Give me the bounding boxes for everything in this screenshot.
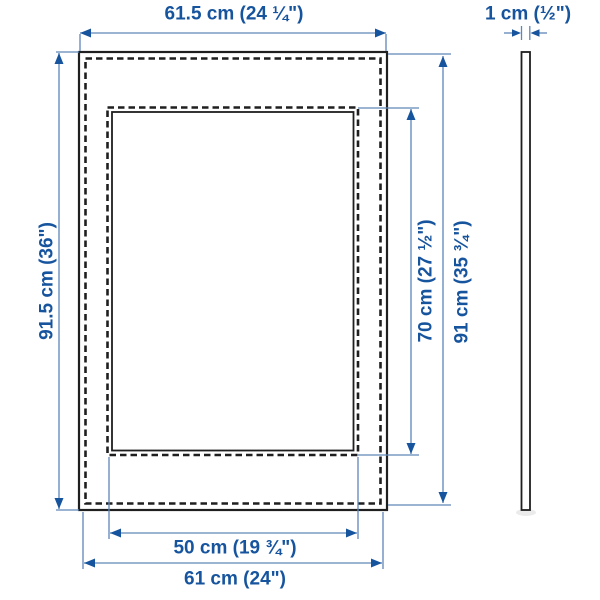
label-outer-width: 61.5 cm (24 ¼") (165, 5, 304, 24)
dim-thickness (504, 26, 547, 40)
arrow-right-icon (346, 529, 357, 538)
label-right-height: 91 cm (35 ¾") (453, 220, 472, 343)
arrow-down-icon (407, 443, 416, 454)
label-opening-height: 70 cm (27 ½") (417, 219, 436, 342)
side-profile-view (516, 52, 536, 516)
label-thickness: 1 cm (½") (485, 5, 571, 24)
arrow-right-icon (375, 29, 386, 38)
product-dimension-diagram: 61.5 cm (24 ¼") 1 cm (½") 91.5 cm (36") … (0, 0, 600, 600)
arrow-left-icon (84, 559, 95, 568)
arrow-right-icon (371, 559, 382, 568)
label-outer-height: 91.5 cm (36") (38, 222, 57, 340)
arrow-left-icon (531, 29, 540, 36)
arrow-down-icon (439, 492, 448, 503)
arrow-left-icon (110, 529, 121, 538)
front-view-frame (79, 52, 387, 510)
dim-outer-height (55, 52, 80, 510)
frame-opening-edge (112, 112, 354, 451)
label-opening-width: 50 cm (19 ¾") (173, 539, 296, 558)
diagram-linework (0, 0, 600, 600)
arrow-up-icon (407, 109, 416, 120)
arrow-down-icon (55, 498, 64, 509)
arrow-up-icon (55, 53, 64, 64)
arrow-left-icon (80, 29, 91, 38)
profile-bar (522, 52, 531, 510)
dim-outer-width (80, 29, 386, 52)
arrow-up-icon (439, 56, 448, 67)
label-bottom-width: 61 cm (24") (184, 570, 286, 589)
arrow-right-icon (512, 29, 521, 36)
